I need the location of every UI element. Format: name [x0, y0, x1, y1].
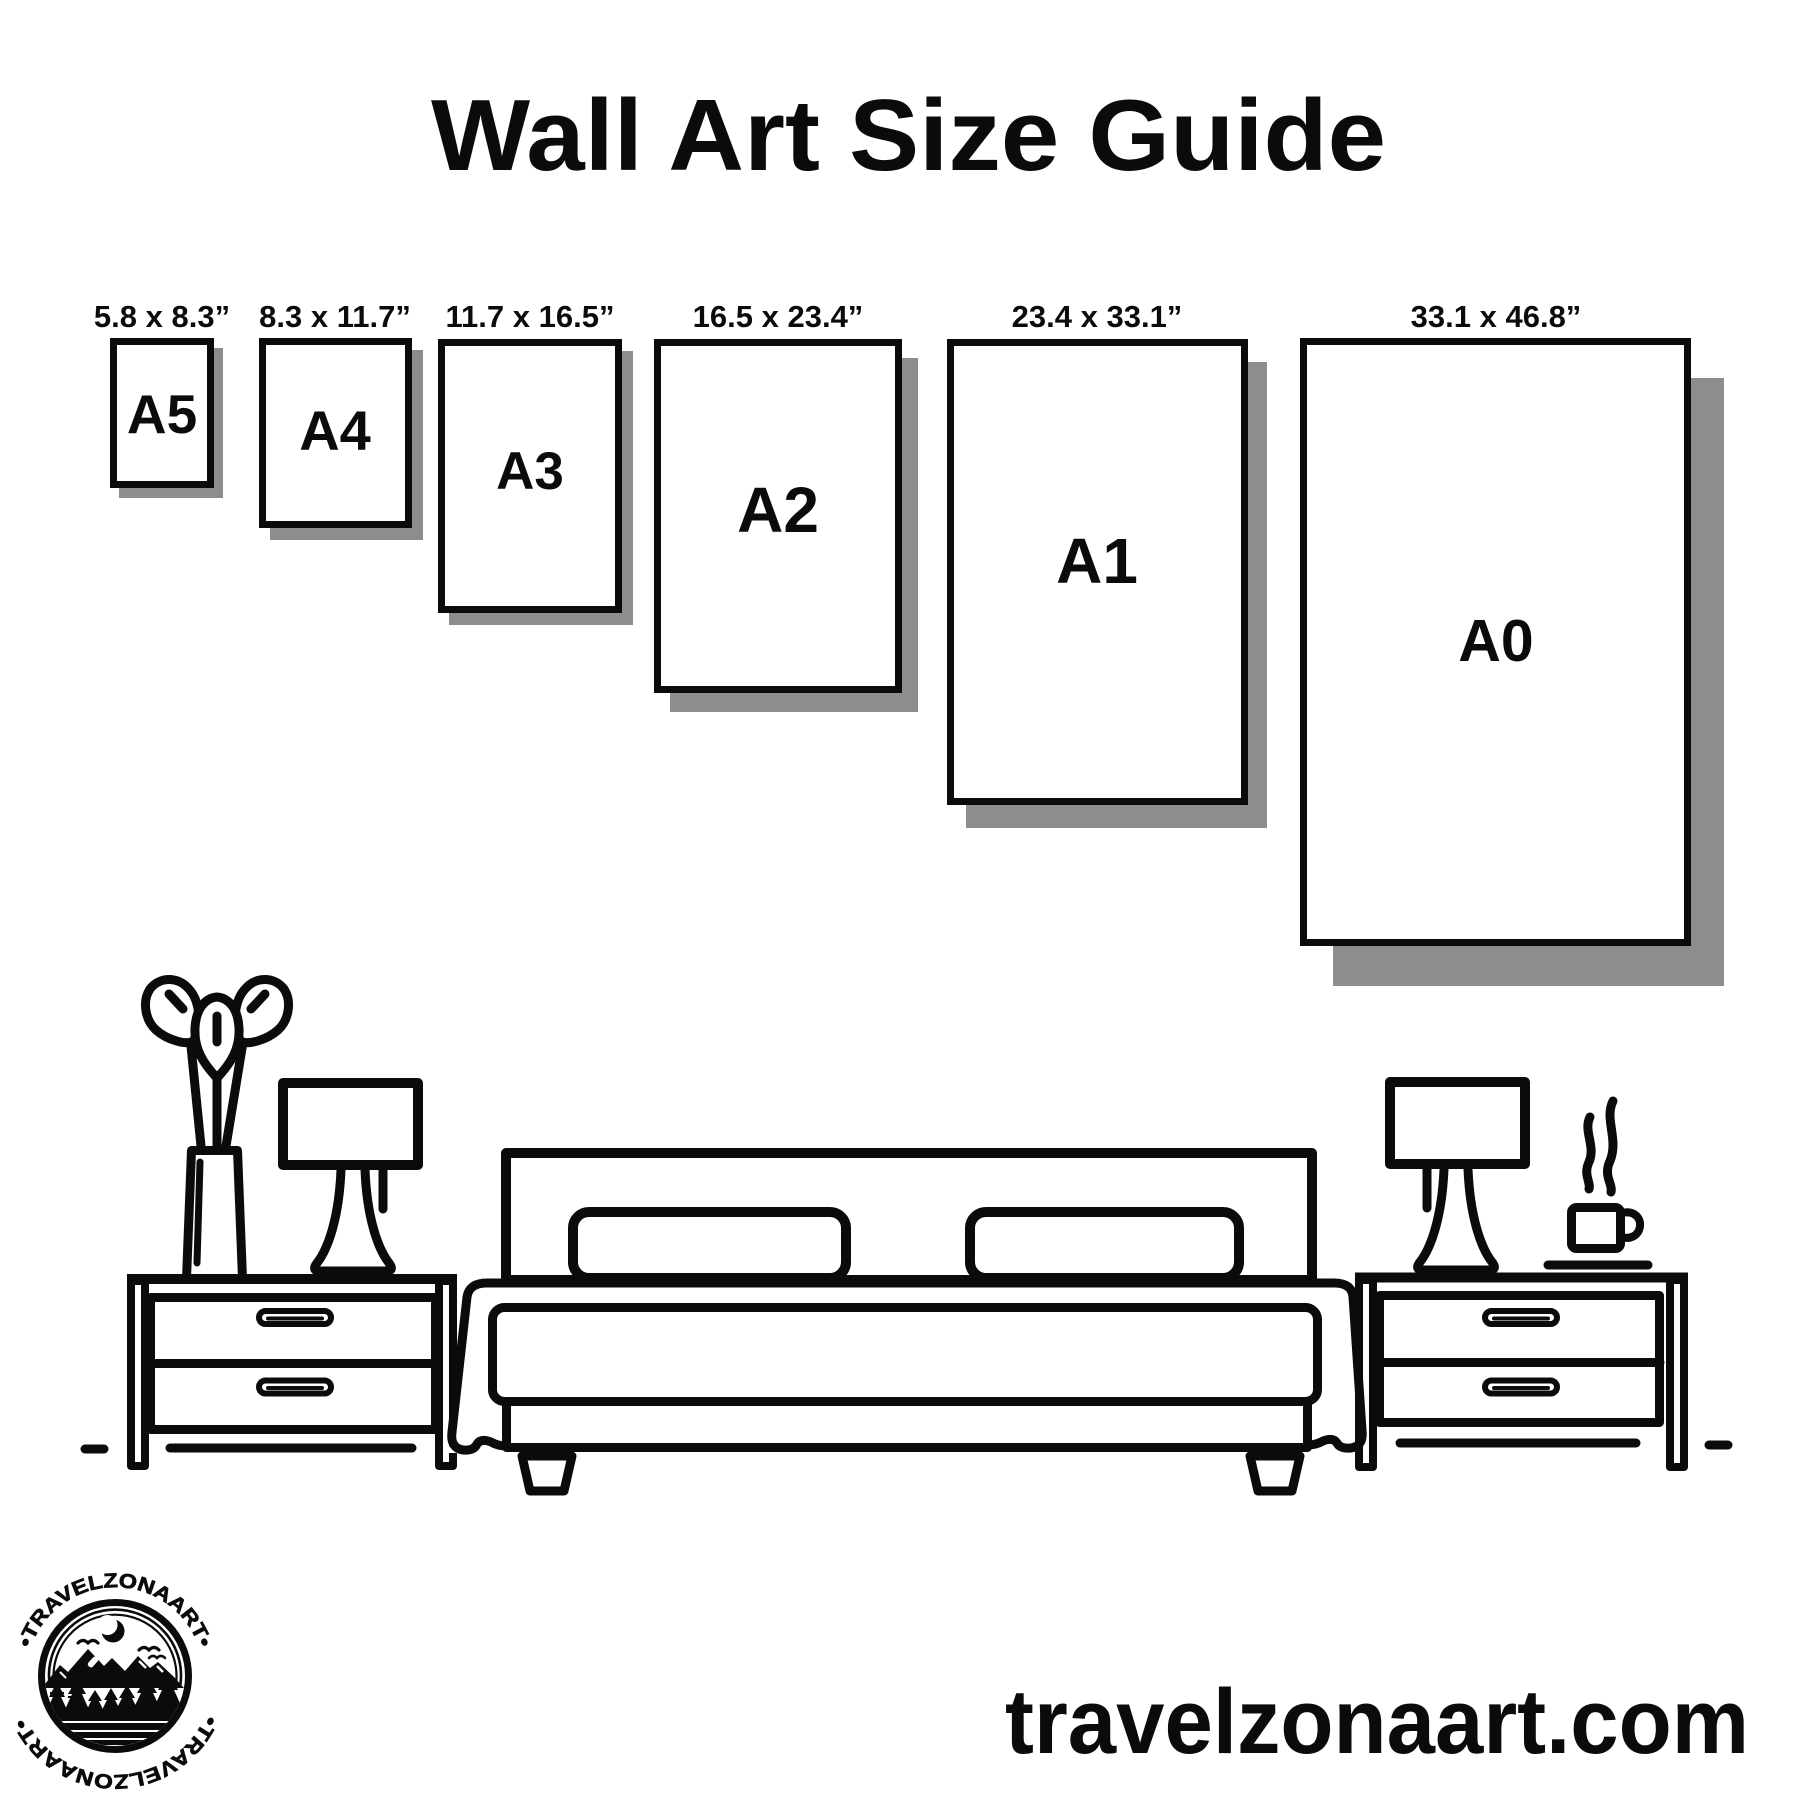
svg-text:Wall Art Size Guide: Wall Art Size Guide [431, 80, 1386, 192]
svg-text:A2: A2 [737, 474, 819, 546]
svg-text:33.1 x 46.8”: 33.1 x 46.8” [1411, 299, 1582, 334]
svg-text:16.5 x 23.4”: 16.5 x 23.4” [693, 299, 864, 334]
svg-text:A5: A5 [127, 383, 197, 445]
svg-text:A3: A3 [496, 442, 564, 501]
svg-text:5.8 x 8.3”: 5.8 x 8.3” [94, 299, 230, 334]
svg-text:A0: A0 [1458, 608, 1533, 674]
svg-text:travelzonaart.com: travelzonaart.com [1005, 1671, 1749, 1773]
svg-text:A1: A1 [1056, 525, 1138, 597]
svg-text:11.7 x 16.5”: 11.7 x 16.5” [446, 299, 615, 334]
svg-text:23.4 x 33.1”: 23.4 x 33.1” [1012, 299, 1183, 334]
svg-text:A4: A4 [299, 399, 371, 462]
svg-text:8.3 x 11.7”: 8.3 x 11.7” [259, 299, 411, 334]
